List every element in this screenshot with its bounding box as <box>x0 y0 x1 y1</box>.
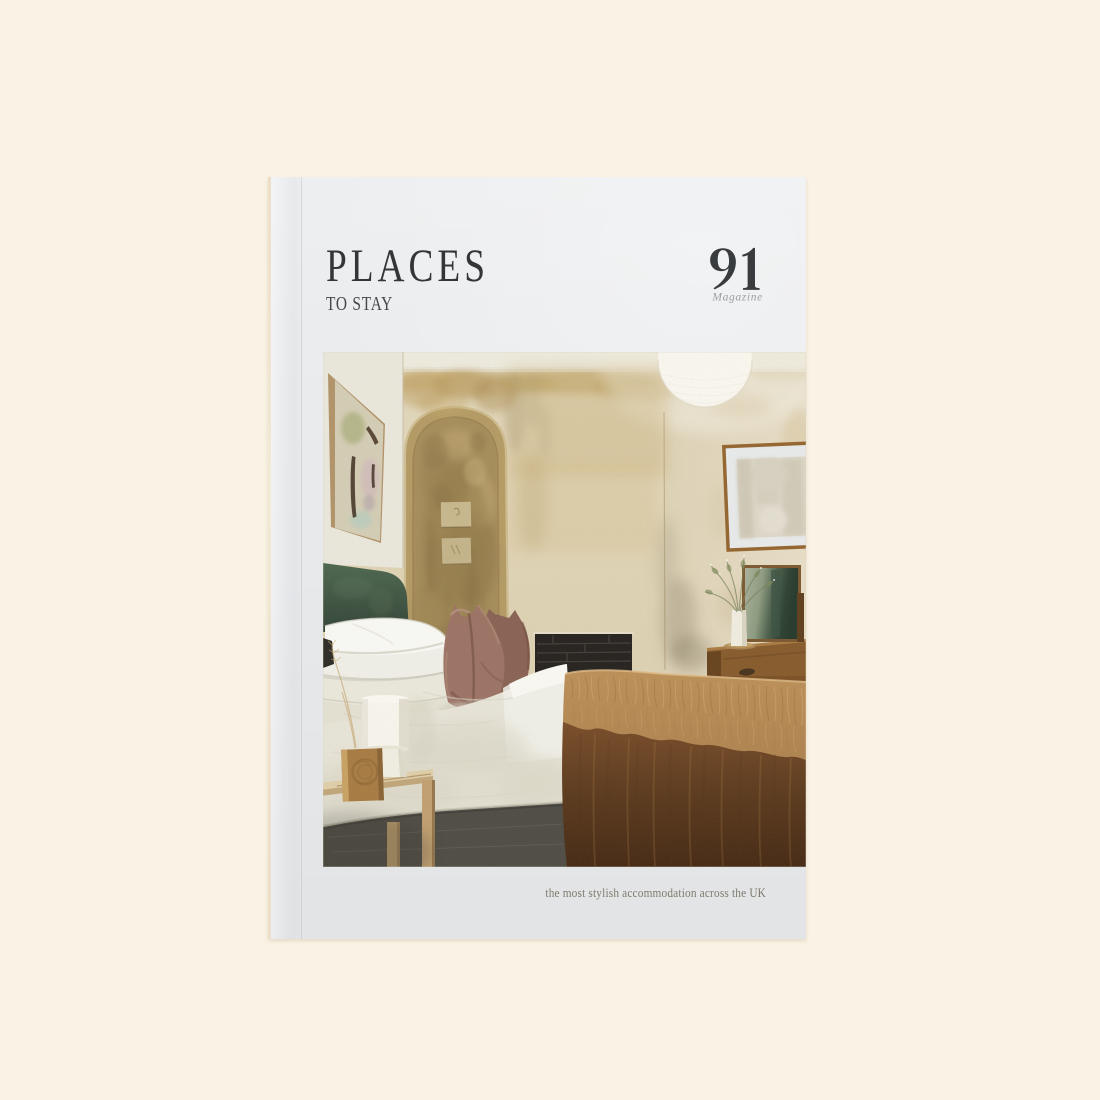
svg-text:Magazine: Magazine <box>711 292 763 304</box>
